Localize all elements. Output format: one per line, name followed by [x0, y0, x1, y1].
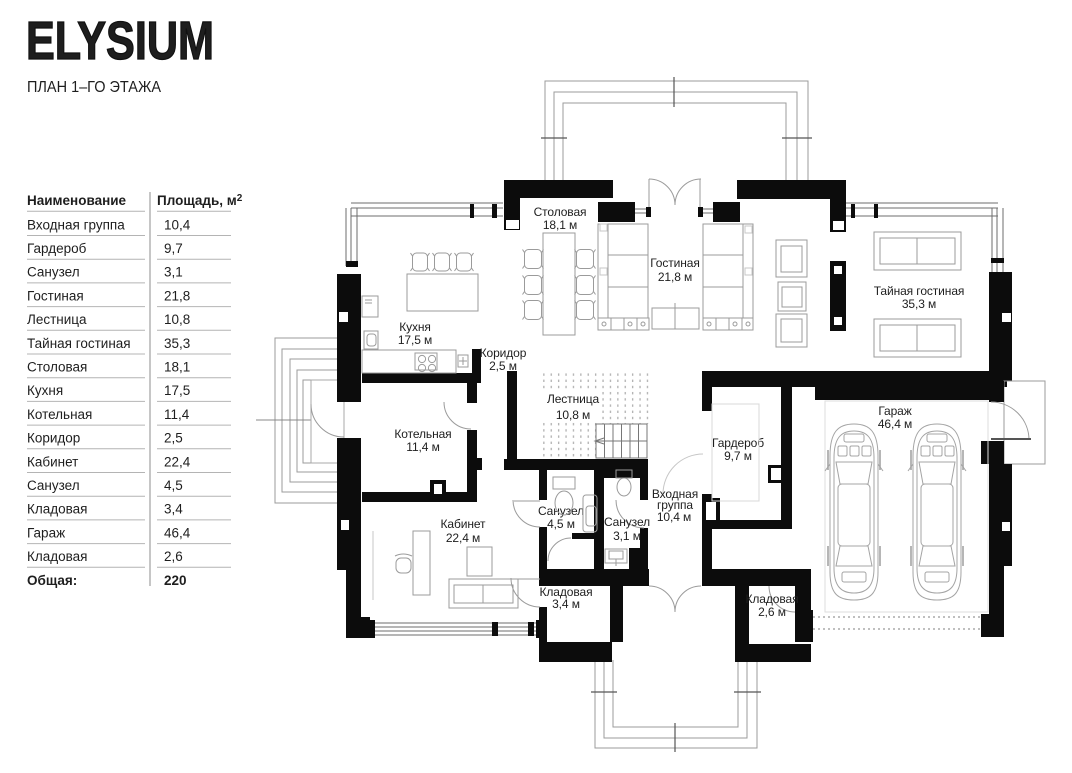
- svg-text:Котельная: Котельная: [27, 407, 92, 422]
- svg-text:9,7: 9,7: [164, 241, 183, 256]
- svg-text:ELYSIUM: ELYSIUM: [26, 11, 214, 71]
- svg-text:2,6 м: 2,6 м: [758, 605, 786, 619]
- svg-text:3,4: 3,4: [164, 502, 183, 517]
- svg-text:3,1 м: 3,1 м: [613, 529, 641, 543]
- svg-text:ПЛАН 1–ГО ЭТАЖА: ПЛАН 1–ГО ЭТАЖА: [27, 79, 162, 96]
- svg-text:3,4 м: 3,4 м: [552, 597, 580, 611]
- svg-text:22,4 м: 22,4 м: [446, 531, 480, 545]
- svg-text:2,5: 2,5: [164, 431, 183, 446]
- svg-text:Санузел: Санузел: [538, 504, 584, 518]
- svg-text:4,5 м: 4,5 м: [547, 517, 575, 531]
- svg-text:2,5 м: 2,5 м: [489, 359, 517, 373]
- svg-text:3,1: 3,1: [164, 265, 183, 280]
- svg-text:Лестница: Лестница: [547, 392, 600, 406]
- svg-text:35,3 м: 35,3 м: [902, 297, 936, 311]
- svg-text:Кабинет: Кабинет: [27, 454, 78, 469]
- svg-text:Площадь, м2: Площадь, м2: [157, 193, 243, 208]
- svg-text:Тайная гостиная: Тайная гостиная: [27, 336, 131, 351]
- svg-text:Котельная: Котельная: [394, 427, 451, 441]
- svg-text:Санузел: Санузел: [27, 478, 80, 493]
- svg-text:Гараж: Гараж: [27, 525, 65, 540]
- svg-text:Гардероб: Гардероб: [712, 436, 764, 450]
- svg-text:Санузел: Санузел: [604, 515, 650, 529]
- svg-text:Кухня: Кухня: [27, 383, 63, 398]
- svg-text:10,4 м: 10,4 м: [657, 510, 691, 524]
- svg-text:17,5 м: 17,5 м: [398, 333, 432, 347]
- svg-text:10,8: 10,8: [164, 312, 190, 327]
- svg-text:Гостиная: Гостиная: [27, 288, 84, 303]
- svg-text:Кладовая: Кладовая: [27, 502, 87, 517]
- svg-text:Кладовая: Кладовая: [27, 549, 87, 564]
- svg-text:21,8 м: 21,8 м: [658, 270, 692, 284]
- svg-text:Коридор: Коридор: [27, 431, 80, 446]
- svg-text:17,5: 17,5: [164, 383, 190, 398]
- svg-text:46,4: 46,4: [164, 525, 191, 540]
- svg-text:10,8 м: 10,8 м: [556, 408, 590, 422]
- svg-text:Столовая: Столовая: [534, 205, 587, 219]
- svg-text:Кухня: Кухня: [399, 320, 431, 334]
- svg-text:Столовая: Столовая: [27, 360, 87, 375]
- svg-text:Гардероб: Гардероб: [27, 241, 87, 256]
- svg-text:Гостиная: Гостиная: [650, 256, 700, 270]
- svg-text:4,5: 4,5: [164, 478, 183, 493]
- svg-text:46,4 м: 46,4 м: [878, 417, 912, 431]
- svg-text:9,7 м: 9,7 м: [724, 449, 752, 463]
- svg-text:18,1 м: 18,1 м: [543, 218, 577, 232]
- svg-text:18,1: 18,1: [164, 360, 190, 375]
- svg-text:Кладовая: Кладовая: [746, 592, 799, 606]
- svg-text:22,4: 22,4: [164, 454, 191, 469]
- svg-text:Гараж: Гараж: [878, 404, 911, 418]
- svg-text:2,6: 2,6: [164, 549, 183, 564]
- svg-text:11,4: 11,4: [164, 407, 190, 422]
- svg-text:Общая:: Общая:: [27, 573, 77, 588]
- svg-text:11,4 м: 11,4 м: [406, 440, 439, 454]
- svg-text:21,8: 21,8: [164, 288, 190, 303]
- svg-text:Тайная гостиная: Тайная гостиная: [874, 284, 965, 298]
- svg-text:Санузел: Санузел: [27, 265, 80, 280]
- svg-text:220: 220: [164, 573, 187, 588]
- svg-text:10,4: 10,4: [164, 217, 191, 232]
- svg-text:Лестница: Лестница: [27, 312, 87, 327]
- svg-text:35,3: 35,3: [164, 336, 190, 351]
- svg-text:Кабинет: Кабинет: [441, 517, 487, 531]
- svg-text:Входная группа: Входная группа: [27, 217, 125, 232]
- svg-text:Коридор: Коридор: [480, 346, 527, 360]
- svg-text:Наименование: Наименование: [27, 193, 127, 208]
